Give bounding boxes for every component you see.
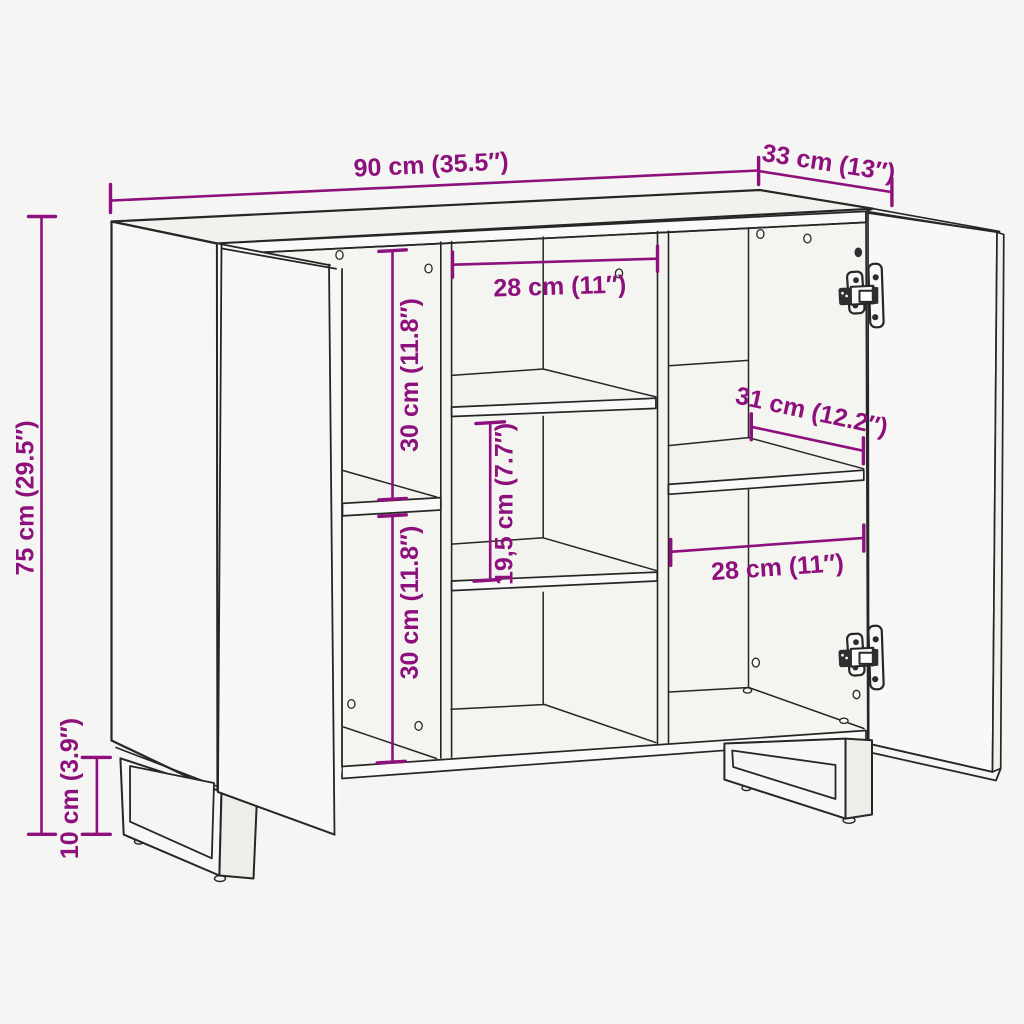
- svg-text:10 cm (3.9″): 10 cm (3.9″): [56, 718, 84, 859]
- svg-text:30 cm (11.8″): 30 cm (11.8″): [396, 526, 424, 680]
- svg-text:19,5 cm (7.7″): 19,5 cm (7.7″): [491, 423, 519, 585]
- svg-text:30 cm (11.8″): 30 cm (11.8″): [396, 298, 424, 452]
- svg-text:75 cm (29.5″): 75 cm (29.5″): [12, 420, 40, 575]
- svg-text:28 cm (11″): 28 cm (11″): [493, 271, 627, 303]
